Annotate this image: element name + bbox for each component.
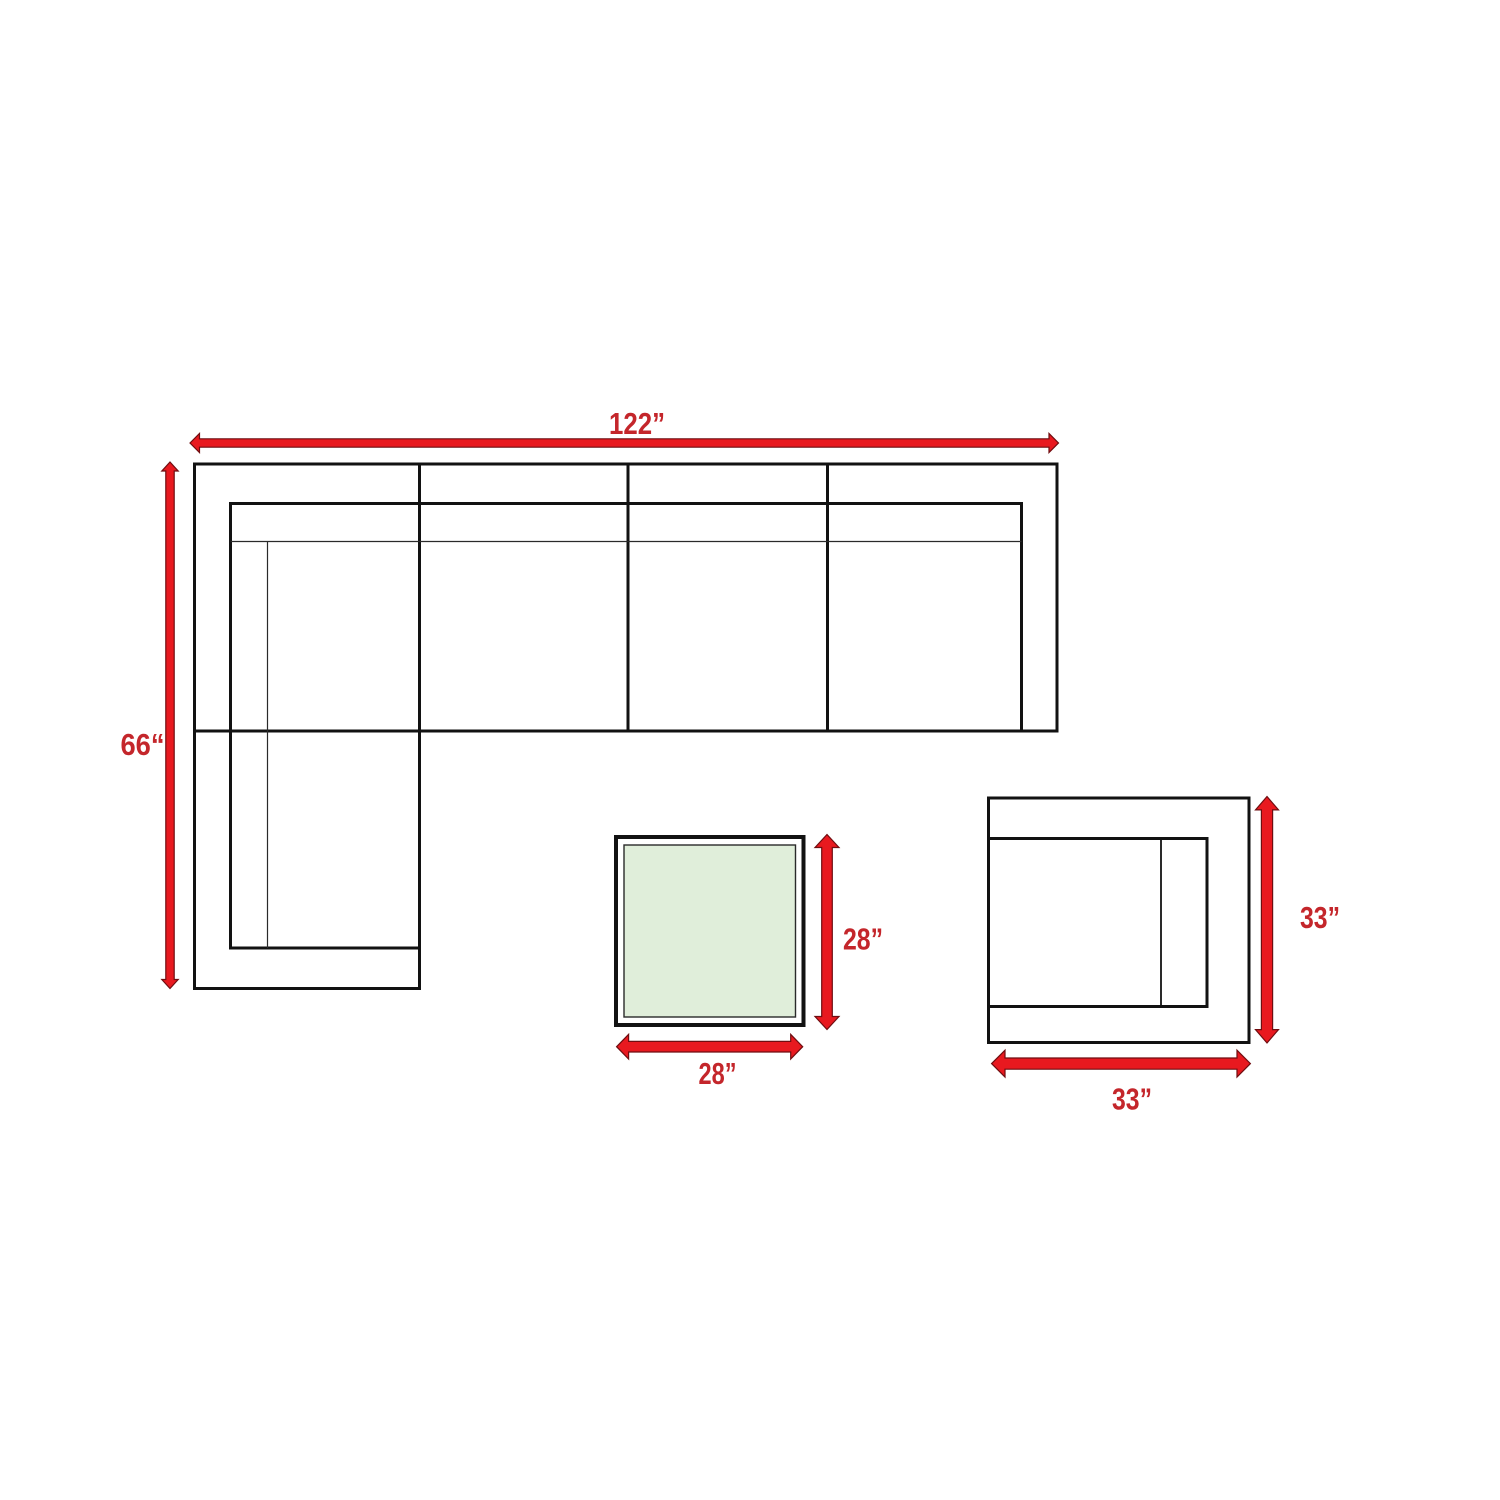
svg-text:28”: 28” bbox=[699, 1056, 737, 1091]
svg-text:28”: 28” bbox=[843, 922, 883, 957]
svg-text:122”: 122” bbox=[609, 406, 665, 441]
svg-text:66“: 66“ bbox=[121, 727, 165, 762]
svg-text:33”: 33” bbox=[1112, 1082, 1152, 1117]
svg-text:33”: 33” bbox=[1300, 900, 1340, 935]
